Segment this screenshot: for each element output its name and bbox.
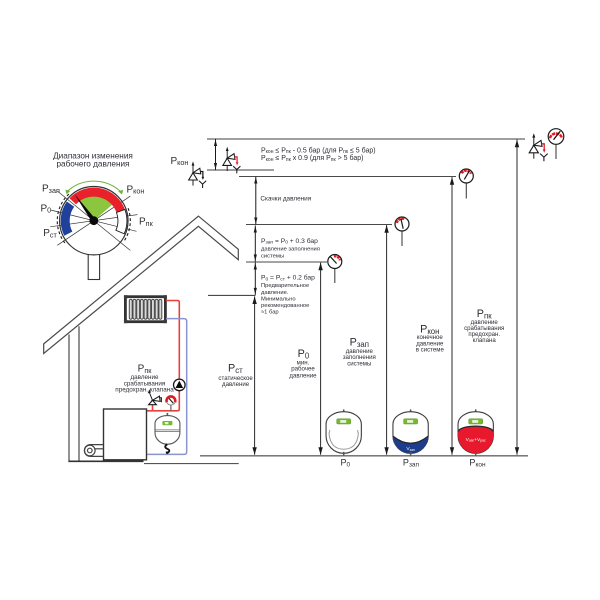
svg-text:предохран. клапана: предохран. клапана: [115, 387, 174, 394]
svg-text:Vзап: Vзап: [406, 446, 415, 452]
svg-text:Р0: Р0: [41, 203, 52, 214]
svg-text:давление: давление: [289, 372, 317, 379]
svg-text:Скачки давления: Скачки давления: [260, 195, 311, 202]
svg-text:Vзап+Vрас: Vзап+Vрас: [466, 437, 486, 443]
svg-text:давление заполнения: давление заполнения: [261, 246, 320, 252]
svg-text:в системе: в системе: [416, 346, 445, 353]
svg-text:Ркон: Ркон: [171, 156, 189, 167]
svg-text:рекомендованное: рекомендованное: [261, 303, 309, 309]
svg-text:давление: давление: [222, 381, 250, 388]
svg-text:Рзап: Рзап: [42, 184, 60, 195]
svg-text:Ркон ≤ Рпк - 0.5 бар (для Рп: Ркон ≤ Рпк - 0.5 бар (для Рпк ≤ 5 бар): [261, 146, 376, 155]
svg-text:Ркон ≤ Рпк х 0.9 (для Рпк >: Ркон ≤ Рпк х 0.9 (для Рпк > 5 бар): [261, 154, 363, 163]
svg-text:Р0 = Рст + 0.2 бар: Р0 = Рст + 0.2 бар: [261, 273, 315, 282]
svg-text:Рст: Рст: [43, 228, 57, 239]
svg-text:Рзап = Р0 + 0.3 бар: Рзап = Р0 + 0.3 бар: [261, 237, 318, 246]
svg-text:системы: системы: [261, 253, 284, 259]
svg-text:Ркон: Ркон: [469, 457, 486, 468]
svg-text:≈1 бар: ≈1 бар: [261, 310, 279, 316]
svg-text:Р0: Р0: [340, 457, 350, 468]
svg-text:клапана: клапана: [473, 337, 497, 344]
svg-text:системы: системы: [347, 361, 371, 368]
svg-text:Ркон: Ркон: [127, 184, 145, 195]
svg-text:Рст: Рст: [228, 362, 243, 375]
svg-text:Рпк: Рпк: [139, 217, 154, 228]
svg-text:рабочего давления: рабочего давления: [57, 160, 130, 169]
svg-text:давление.: давление.: [261, 290, 289, 296]
svg-text:Минимально: Минимально: [261, 296, 296, 302]
svg-text:Предварительное: Предварительное: [261, 283, 309, 289]
svg-text:Рзап: Рзап: [403, 457, 420, 468]
